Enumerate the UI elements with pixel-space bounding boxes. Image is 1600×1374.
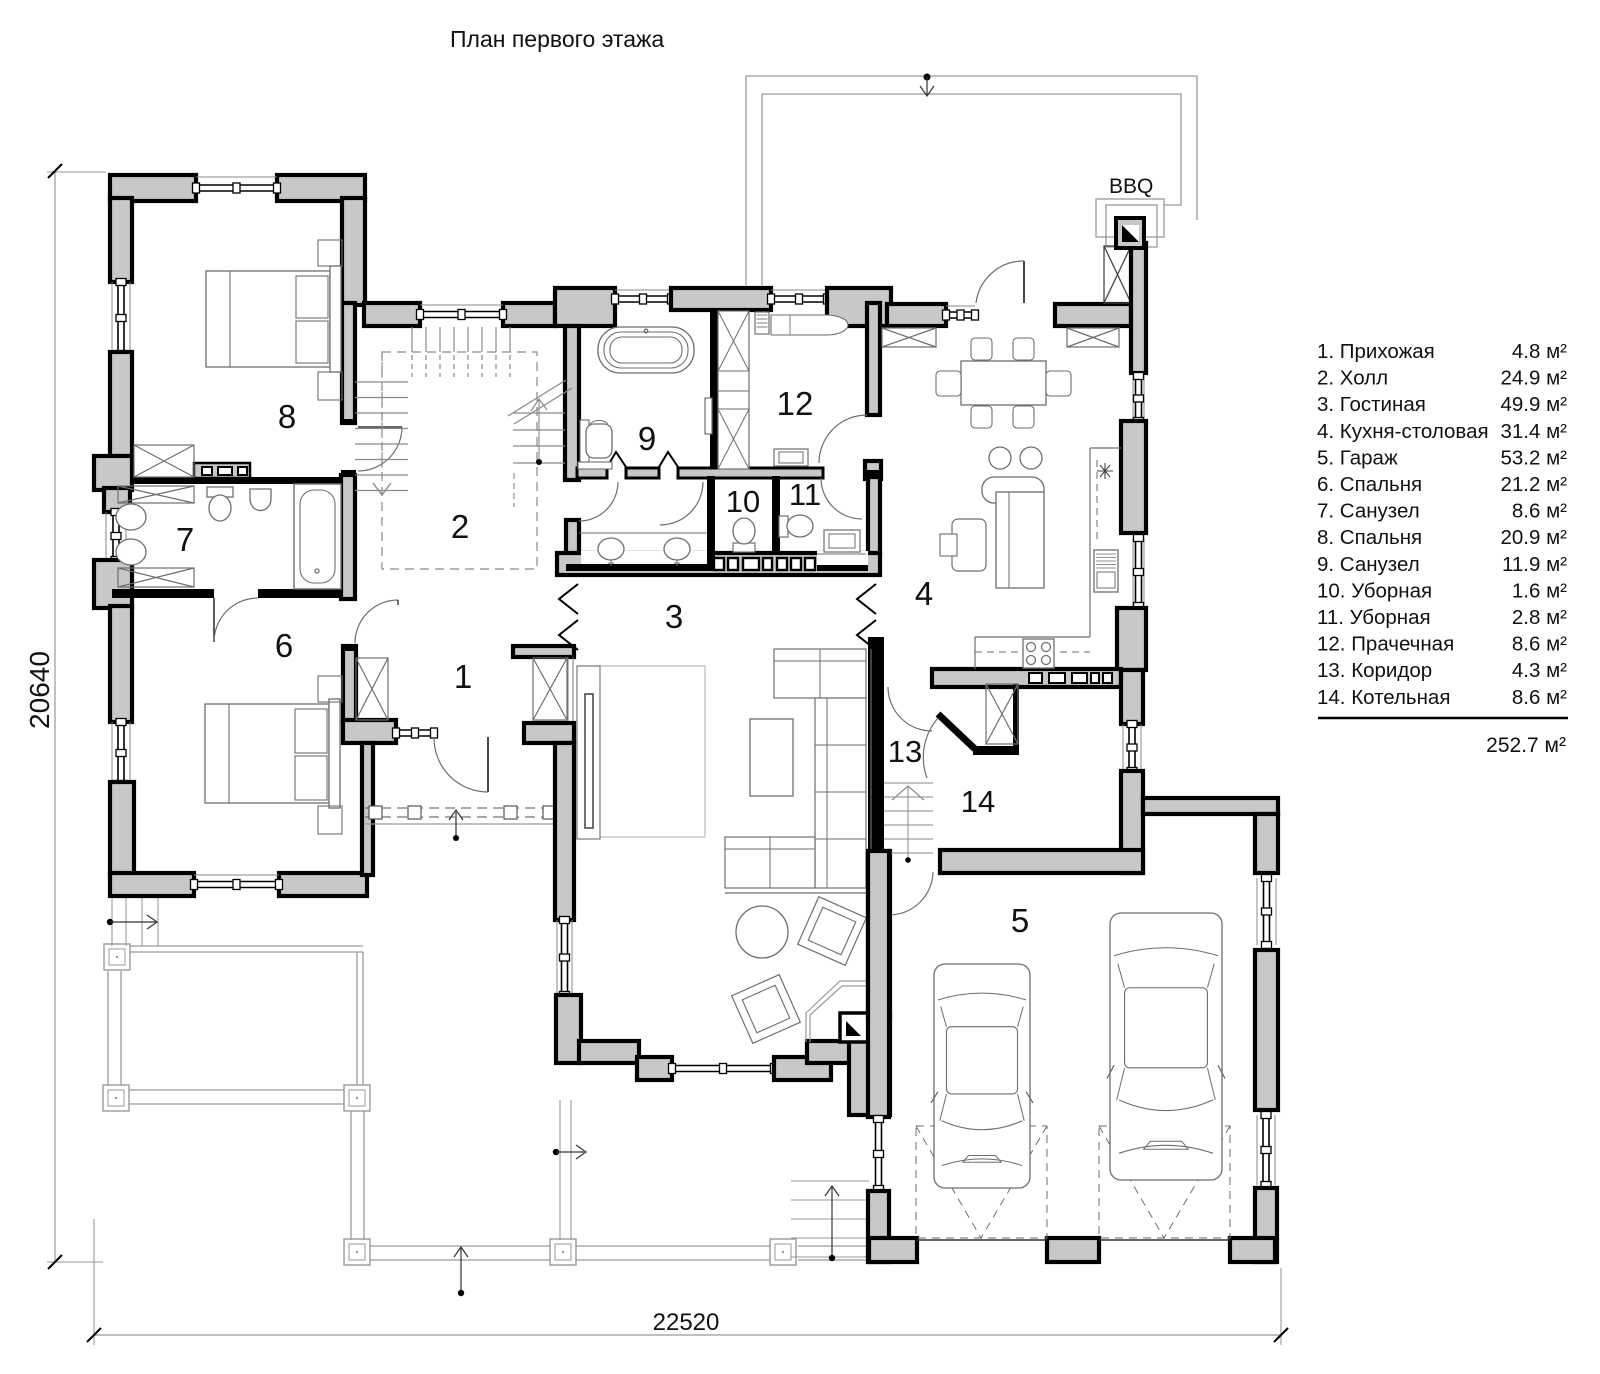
svg-text:3: 3 <box>665 598 683 635</box>
svg-text:2. Холл: 2. Холл <box>1317 367 1388 390</box>
svg-text:1. Прихожая: 1. Прихожая <box>1317 340 1435 363</box>
svg-text:11: 11 <box>789 477 821 512</box>
svg-text:22520: 22520 <box>653 1309 720 1336</box>
svg-text:2: 2 <box>451 508 469 545</box>
svg-text:12. Прачечная: 12. Прачечная <box>1317 633 1454 656</box>
svg-text:5: 5 <box>1011 902 1029 939</box>
svg-text:4: 4 <box>915 575 933 612</box>
svg-text:1.6 м²: 1.6 м² <box>1512 579 1567 602</box>
svg-text:8. Спальня: 8. Спальня <box>1317 526 1422 549</box>
svg-text:9. Санузел: 9. Санузел <box>1317 553 1420 576</box>
svg-text:9: 9 <box>638 420 656 457</box>
svg-text:8: 8 <box>278 398 296 435</box>
svg-text:14: 14 <box>961 784 995 819</box>
svg-text:21.2 м²: 21.2 м² <box>1500 473 1567 496</box>
svg-text:13: 13 <box>888 734 922 769</box>
svg-text:4.8 м²: 4.8 м² <box>1512 340 1567 363</box>
svg-text:1: 1 <box>454 658 472 695</box>
svg-text:49.9 м²: 49.9 м² <box>1500 393 1567 416</box>
svg-text:8.6 м²: 8.6 м² <box>1512 500 1567 523</box>
svg-text:53.2 м²: 53.2 м² <box>1500 446 1567 469</box>
svg-text:11.9 м²: 11.9 м² <box>1502 553 1567 576</box>
svg-text:8.6 м²: 8.6 м² <box>1512 633 1567 656</box>
svg-text:20.9 м²: 20.9 м² <box>1500 526 1567 549</box>
svg-text:20640: 20640 <box>24 651 55 729</box>
svg-text:7. Санузел: 7. Санузел <box>1317 500 1420 523</box>
svg-text:2.8 м²: 2.8 м² <box>1512 606 1567 629</box>
svg-text:13. Коридор: 13. Коридор <box>1317 659 1432 682</box>
svg-text:14. Котельная: 14. Котельная <box>1317 686 1450 709</box>
svg-text:24.9 м²: 24.9 м² <box>1500 367 1567 390</box>
svg-text:6: 6 <box>275 627 293 664</box>
svg-text:6. Спальня: 6. Спальня <box>1317 473 1422 496</box>
svg-text:3. Гостиная: 3. Гостиная <box>1317 393 1426 416</box>
svg-text:5. Гараж: 5. Гараж <box>1317 446 1398 469</box>
svg-text:11. Уборная: 11. Уборная <box>1317 606 1431 629</box>
svg-text:10. Уборная: 10. Уборная <box>1317 579 1432 602</box>
svg-text:12: 12 <box>777 385 814 422</box>
svg-text:10: 10 <box>726 484 760 519</box>
svg-text:4.3 м²: 4.3 м² <box>1512 659 1567 682</box>
svg-text:4. Кухня-столовая: 4. Кухня-столовая <box>1317 420 1489 443</box>
svg-text:8.6 м²: 8.6 м² <box>1512 686 1567 709</box>
svg-text:BBQ: BBQ <box>1109 175 1153 198</box>
svg-text:31.4 м²: 31.4 м² <box>1500 420 1567 443</box>
svg-text:План первого этажа: План первого этажа <box>450 26 664 52</box>
svg-text:7: 7 <box>176 521 194 558</box>
svg-text:252.7 м²: 252.7 м² <box>1486 734 1566 757</box>
